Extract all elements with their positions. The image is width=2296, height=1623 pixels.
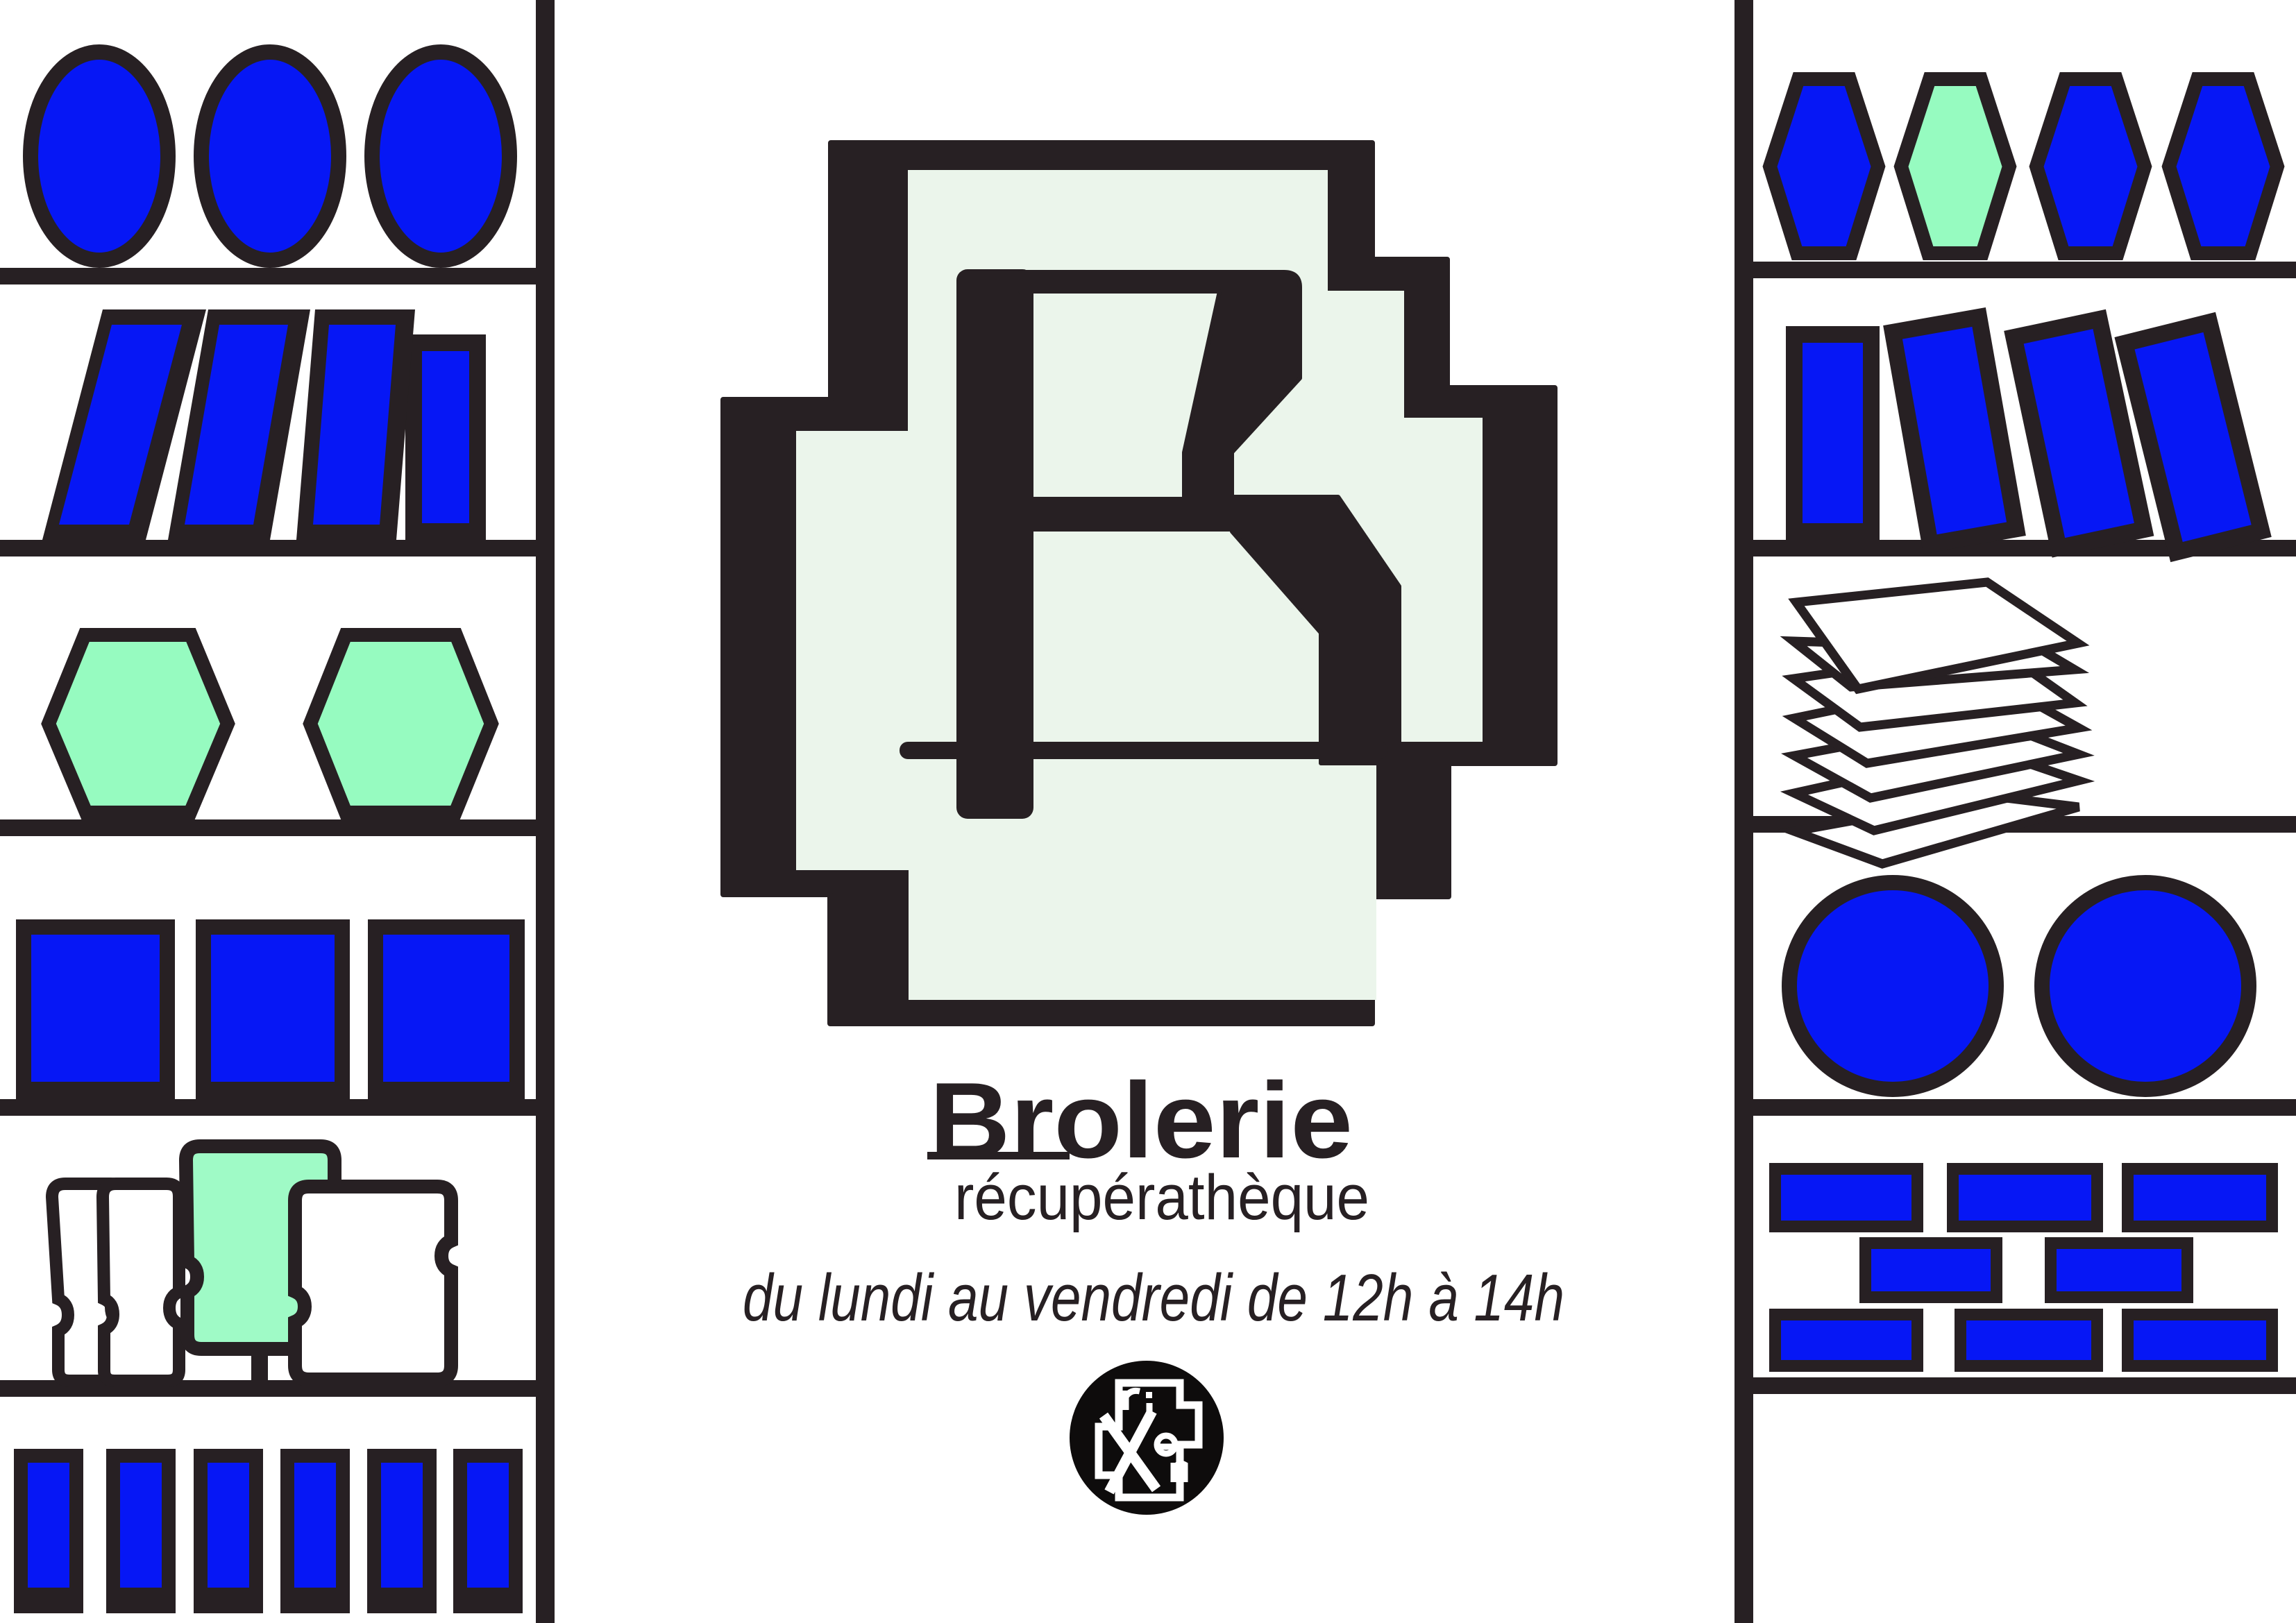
svg-text:récupérathèque: récupérathèque [954,1162,1369,1233]
svg-text:du lundi au vendredi de 12h à: du lundi au vendredi de 12h à 14h [743,1261,1564,1335]
